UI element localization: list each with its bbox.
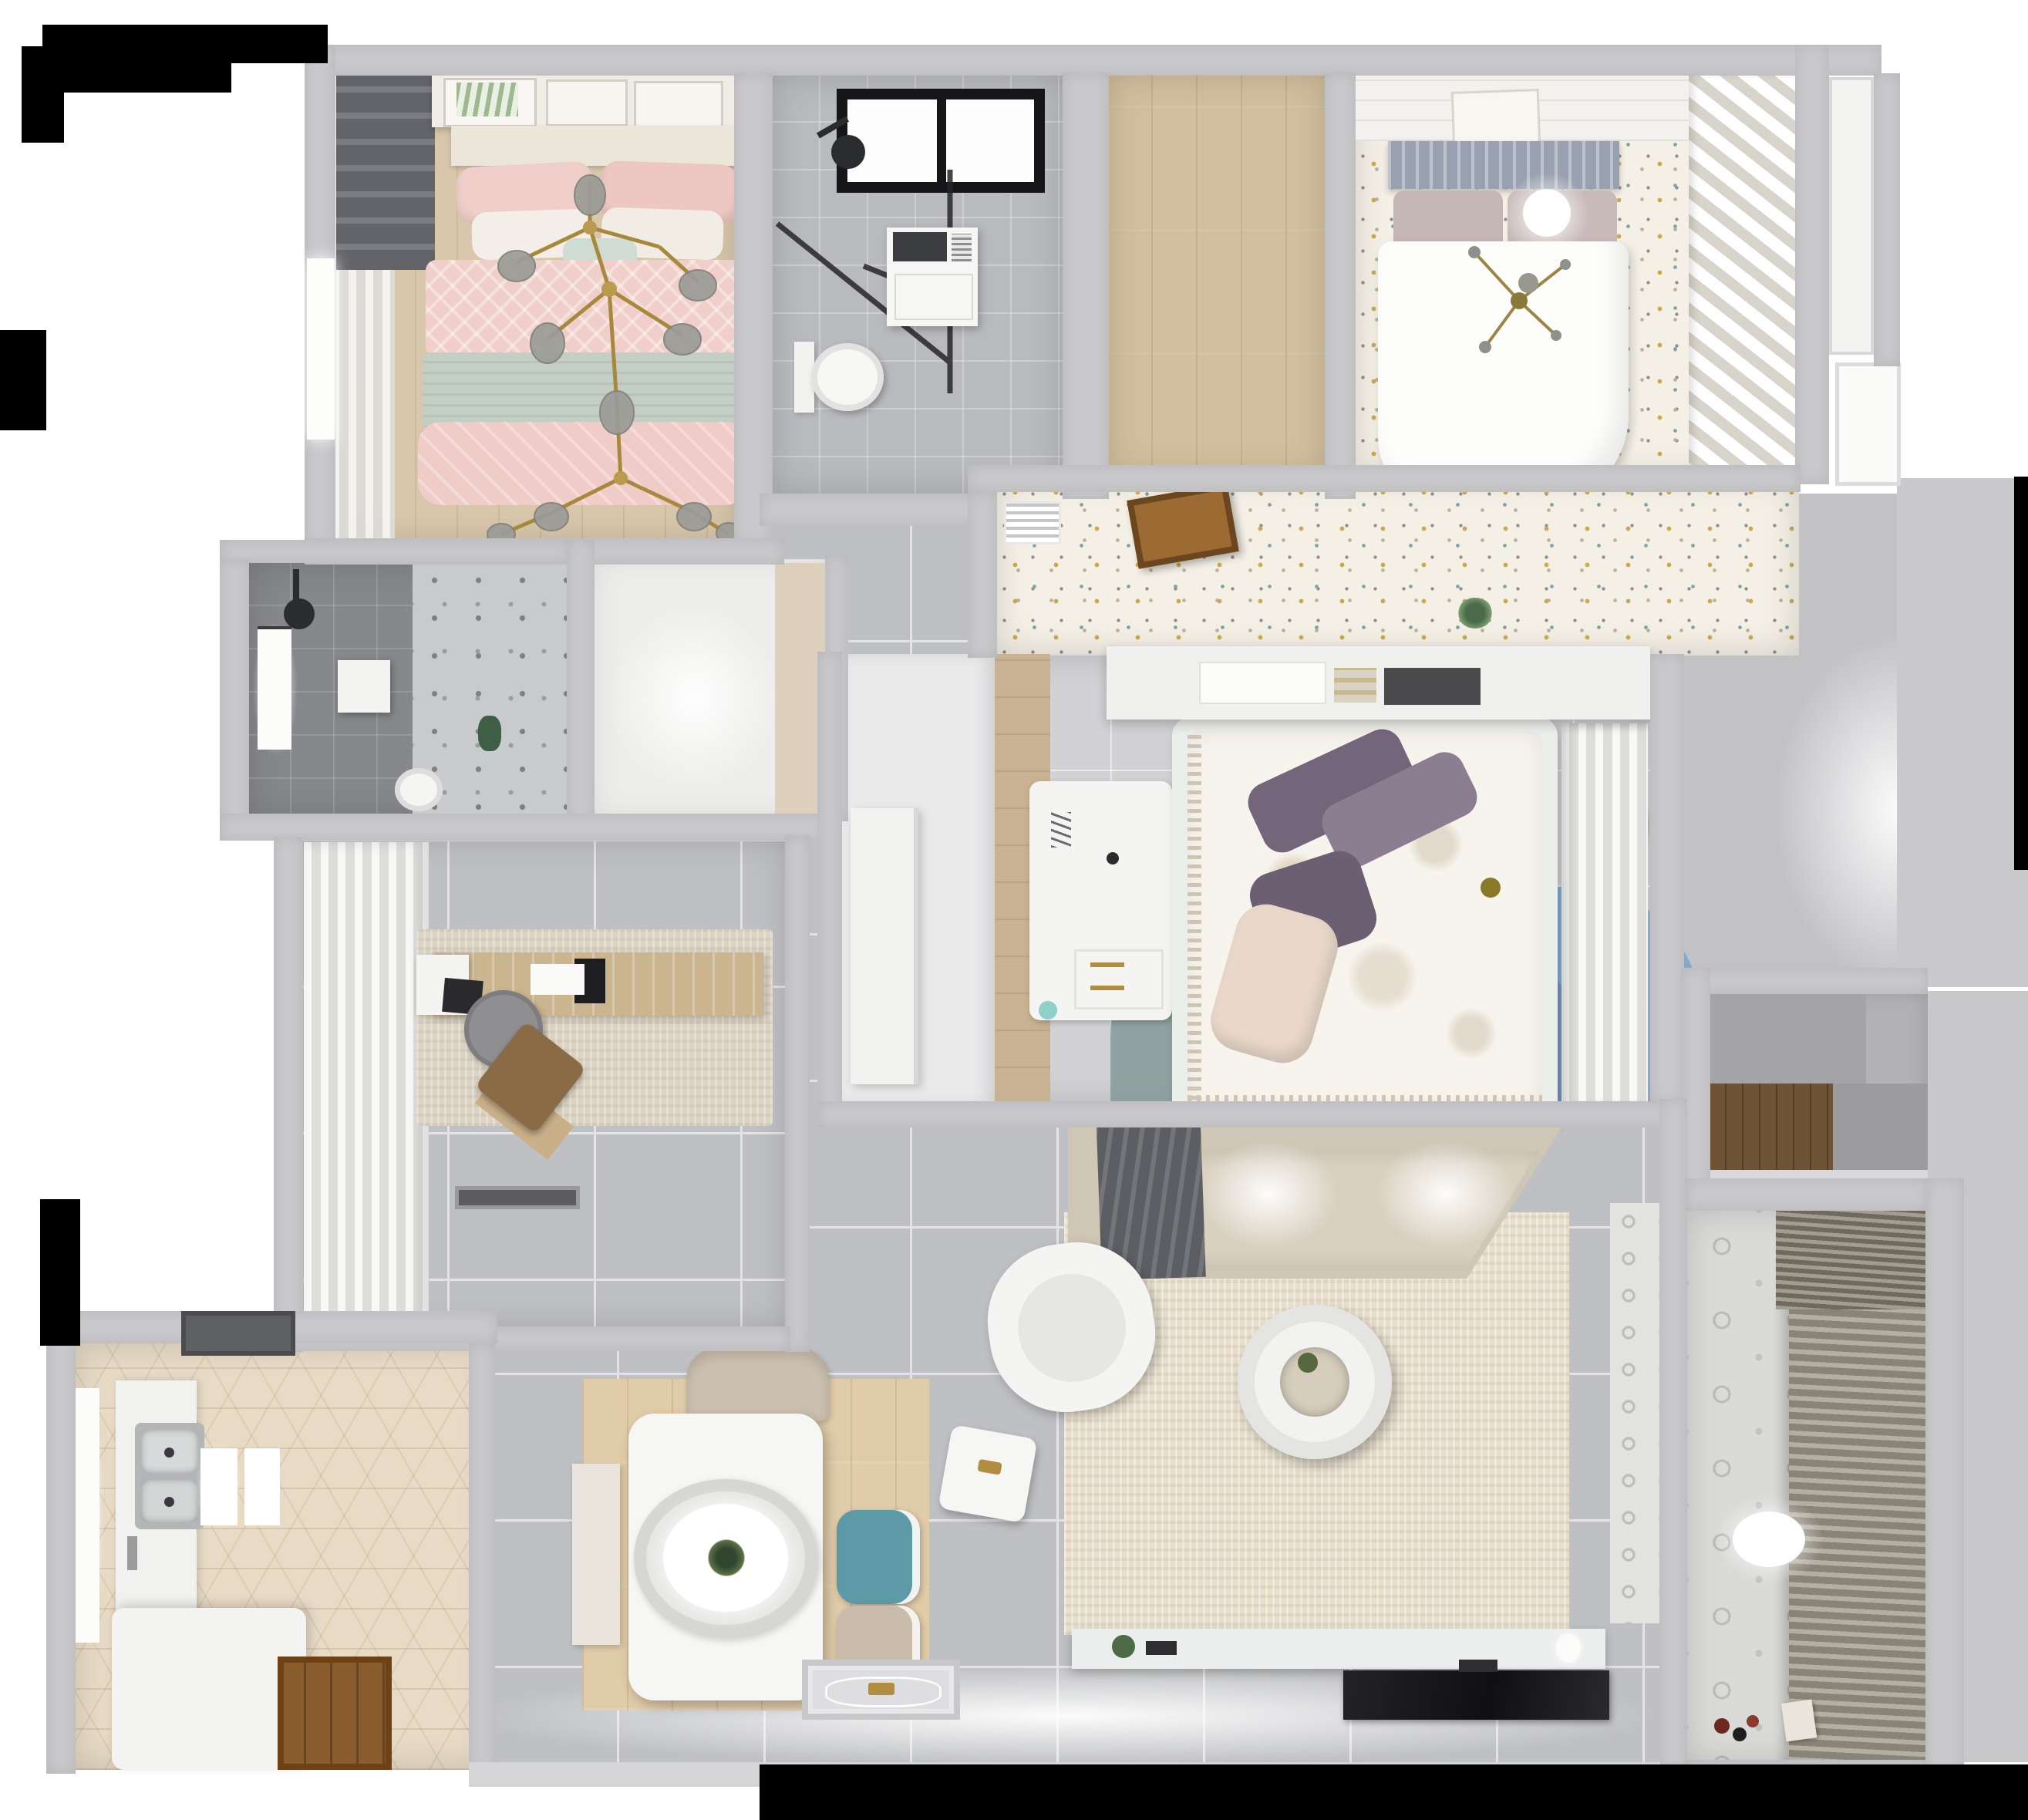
wood-counter (1708, 1084, 1833, 1170)
doormat-scroll (825, 1677, 942, 1707)
balcony-light-disc (1733, 1512, 1805, 1567)
floorplan-canvas: { "scene": { "type": "3d-apartment-floor… (0, 0, 2028, 1820)
desk-drawers (1074, 949, 1164, 1009)
drain-dot (164, 1448, 174, 1458)
wall (817, 652, 842, 1126)
armchair-seat (1011, 1267, 1133, 1389)
range-hood (181, 1311, 295, 1356)
wc-floor-glimpse (1610, 1203, 1659, 1623)
shelf-plant (1457, 598, 1493, 629)
wall (46, 1311, 76, 1774)
suite-hall-floor (995, 474, 1799, 656)
shower-arm (293, 569, 299, 603)
coffee-table-donut (1238, 1305, 1392, 1459)
wall (1659, 1099, 1687, 1771)
washer-door-line (894, 274, 973, 320)
right-door-white (1835, 362, 1901, 486)
background-patch (0, 330, 46, 430)
sheer-curtain-wall (304, 842, 429, 1326)
tv-stand (1459, 1660, 1497, 1672)
console-vase (1556, 1633, 1581, 1663)
kitchen-window-pane (75, 1388, 99, 1643)
dark-doormat (455, 1186, 580, 1209)
master-headboard-shelf (1107, 646, 1650, 720)
niche-light (609, 605, 779, 790)
washing-machine (887, 228, 978, 326)
wall (220, 559, 249, 825)
book-stack (1334, 668, 1376, 703)
dark-tablet (1384, 668, 1481, 705)
washer-manual (952, 234, 972, 261)
toy-dot (1733, 1727, 1747, 1741)
gold-handle (1090, 986, 1124, 990)
open-door-white (851, 808, 918, 1084)
wall (220, 540, 571, 563)
right-window-strip (1829, 77, 1874, 355)
bathroom-top-floor (771, 73, 1064, 494)
exterior-wall-mass (1897, 478, 2028, 987)
wall (1874, 73, 1900, 366)
gray-cabinet (1833, 1084, 1928, 1170)
shower-tray (338, 660, 390, 713)
background-patch (2014, 477, 2028, 870)
study-floor (301, 839, 788, 1329)
gold-decor (977, 1459, 1002, 1475)
bed-headboard (451, 126, 736, 166)
toilet-bowl (395, 768, 443, 811)
pendant-plant (707, 1539, 746, 1576)
wall (567, 540, 595, 821)
wall (1685, 1178, 1928, 1211)
sofa-highlight (1376, 1140, 1515, 1248)
toilet-bowl (811, 343, 884, 411)
wall (760, 494, 995, 526)
flat-tv-panel (1343, 1670, 1609, 1720)
ac-vent (1004, 501, 1061, 544)
blinds-stack-top (1776, 1209, 1925, 1309)
background-patch (42, 25, 328, 63)
shower-head-icon (831, 135, 865, 169)
branch-chandelier (424, 174, 748, 544)
wall (968, 465, 1801, 492)
dining-chair-teal (837, 1510, 920, 1604)
entry-doormat (802, 1660, 960, 1720)
wall (968, 492, 997, 658)
wall (785, 835, 810, 1352)
faucet (127, 1536, 137, 1570)
shower-head-icon (284, 598, 315, 629)
utility-niche-floor (594, 559, 829, 817)
tv-console (1072, 1629, 1605, 1669)
desk-pens (1051, 812, 1071, 848)
pink-bedroom-floor (332, 73, 736, 544)
sofa-highlight (1199, 1140, 1338, 1248)
dining-bench (572, 1464, 620, 1645)
duvet-fringe (1187, 731, 1201, 1109)
wall (469, 1343, 495, 1774)
side-stool (938, 1424, 1037, 1523)
background-patch (760, 1764, 2028, 1820)
toy-dot (1714, 1718, 1730, 1734)
background-patch (42, 62, 231, 93)
wall (305, 45, 1881, 76)
table-plant (1298, 1353, 1318, 1373)
green-plant (478, 716, 501, 751)
background-patch (40, 1199, 80, 1346)
wardrobe-curtain (1561, 723, 1648, 1109)
entry-wood-floor (278, 1657, 392, 1770)
kitchen-floor (73, 1342, 494, 1770)
wall (1650, 654, 1684, 1103)
drain-dot (164, 1497, 174, 1507)
niche-interior (1708, 991, 1866, 1085)
kids-bedroom-floor (1353, 73, 1797, 478)
roman-shade (336, 73, 435, 270)
wall (734, 73, 773, 545)
pendant-lamp (634, 1479, 817, 1637)
console-objects (1146, 1641, 1177, 1655)
round-ceiling-light-disc (1523, 189, 1571, 237)
master-desk (1029, 781, 1172, 1020)
console-plant (1112, 1635, 1135, 1658)
open-door-wood (1127, 483, 1239, 569)
wall (1325, 73, 1356, 499)
wall (817, 1101, 1683, 1127)
background-patch (22, 46, 64, 143)
dining-chair-beige (686, 1348, 829, 1421)
teal-bottle (1039, 1001, 1057, 1020)
papers (531, 964, 584, 995)
wall (1925, 1178, 1964, 1788)
wall (1063, 73, 1109, 499)
wall-art-frame (456, 83, 518, 116)
wall-art-frame (546, 79, 628, 126)
wall-art-frame (634, 81, 723, 129)
toy-dot (1747, 1715, 1759, 1727)
wall (220, 814, 829, 841)
storage-niche (1708, 991, 1928, 1205)
shower-room-floor (247, 561, 571, 820)
bedroom-window (307, 258, 335, 440)
balcony-floor (1685, 1209, 1925, 1764)
wall (274, 837, 303, 1352)
white-tray (200, 1448, 237, 1525)
diagonal-shelving (1689, 73, 1797, 478)
walkin-floor (1107, 73, 1326, 478)
wall (1681, 968, 1928, 994)
white-tray (244, 1448, 280, 1525)
window-pane (258, 626, 291, 750)
master-bedroom-floor (995, 654, 1650, 1105)
storage-box (1781, 1699, 1817, 1741)
gold-handle (1090, 962, 1124, 967)
desk-knob (1107, 852, 1119, 865)
sputnik-lamp (1457, 235, 1581, 359)
double-sink (135, 1423, 204, 1529)
wall (1795, 45, 1829, 484)
washer-control-panel (893, 232, 947, 261)
papers-on-shelf (1199, 662, 1326, 704)
gold-accent-dot (1481, 878, 1501, 898)
